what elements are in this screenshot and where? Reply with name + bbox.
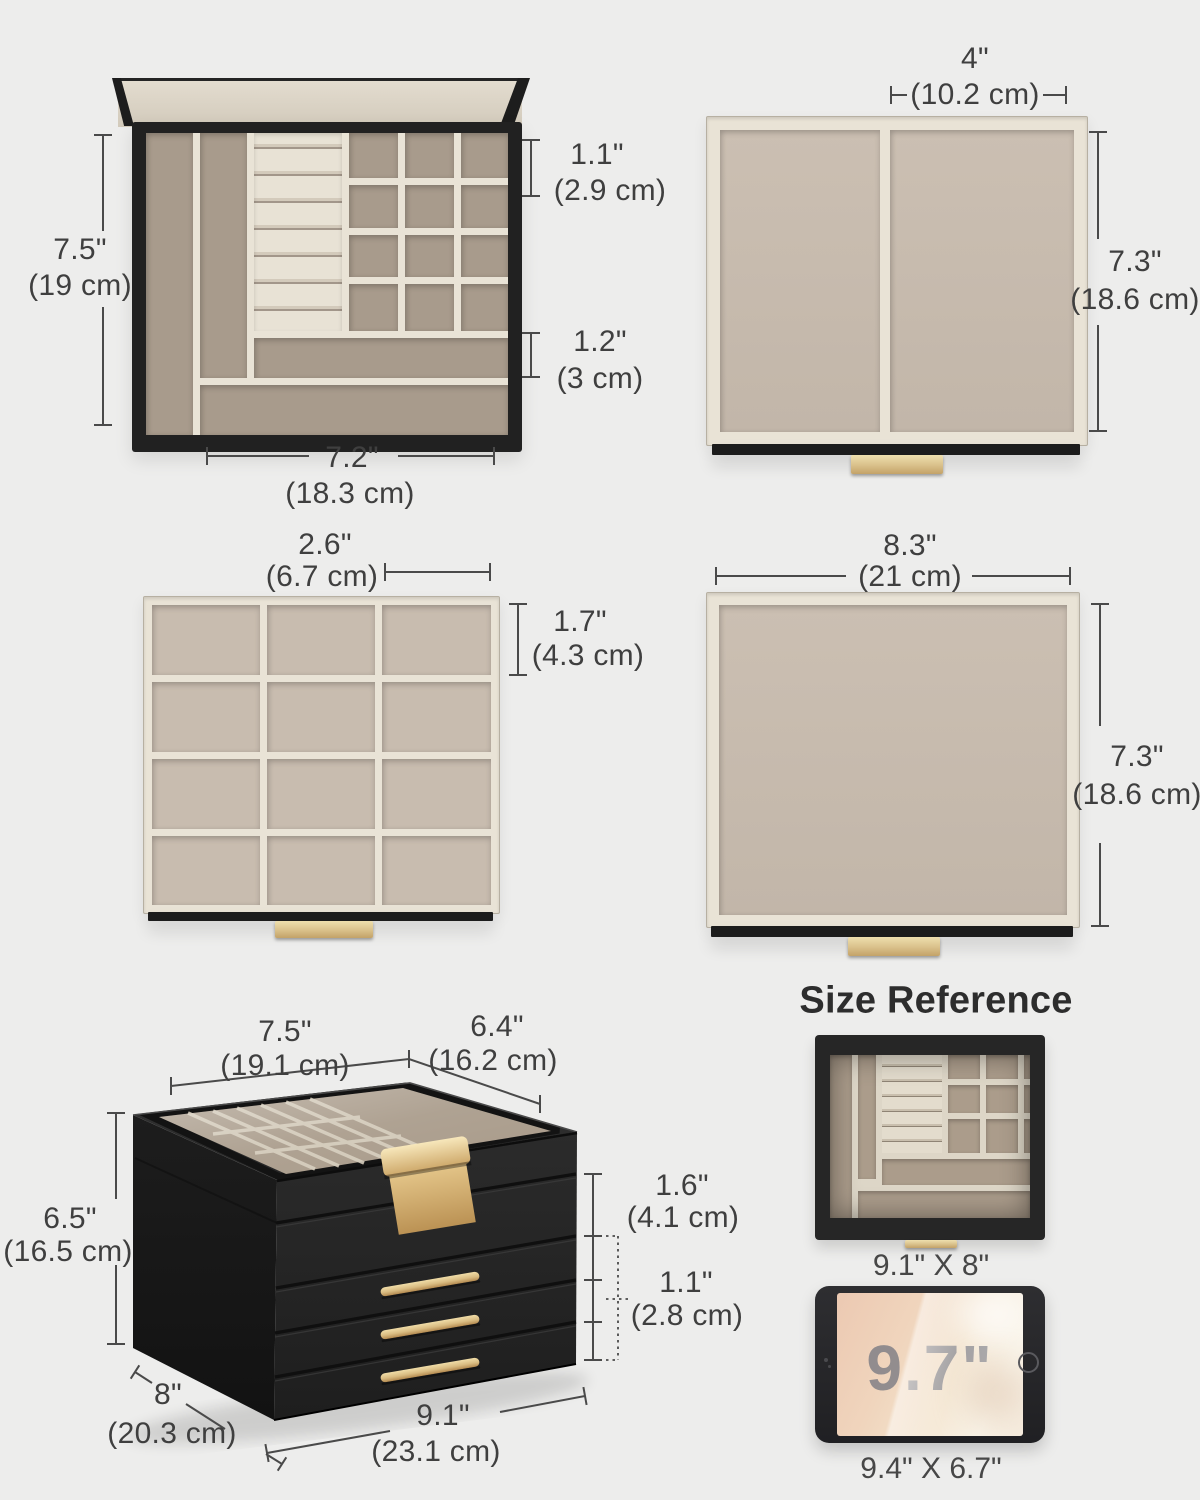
- dim-label: 7.5": [258, 1017, 312, 1047]
- dim-label: (18.6 cm): [1070, 285, 1199, 315]
- dim-label: (2.8 cm): [631, 1301, 743, 1331]
- dim-label: 8.3": [883, 531, 937, 561]
- dim-label: (2.9 cm): [554, 176, 666, 206]
- dim-label: (20.3 cm): [107, 1419, 236, 1449]
- dim-label: 6.4": [470, 1012, 524, 1042]
- dimension-labels: 7.5" (19 cm) 1.1" (2.9 cm) 1.2" (3 cm) 7…: [0, 0, 1200, 1500]
- dim-label: 7.5": [53, 235, 107, 265]
- dim-label: (21 cm): [858, 562, 962, 592]
- dim-label: 1.1": [659, 1268, 713, 1298]
- dim-label: 1.1": [570, 140, 624, 170]
- dim-label: (19 cm): [28, 271, 132, 301]
- dim-label: (23.1 cm): [371, 1437, 500, 1467]
- dim-label: (4.1 cm): [627, 1203, 739, 1233]
- dim-label: 2.6": [298, 530, 352, 560]
- dim-label: 1.7": [553, 607, 607, 637]
- dim-label: 7.3": [1108, 247, 1162, 277]
- dim-label: 1.6": [655, 1171, 709, 1201]
- dim-label: (10.2 cm): [910, 80, 1039, 110]
- dim-label: 7.3": [1110, 742, 1164, 772]
- dim-label: (16.2 cm): [428, 1046, 557, 1076]
- dim-label: (6.7 cm): [266, 562, 378, 592]
- dim-label: 1.2": [573, 327, 627, 357]
- organizer-footprint-label: 9.1" X 8": [873, 1249, 989, 1283]
- product-dimensions-infographic: 9.7": [0, 0, 1200, 1500]
- dim-label: (4.3 cm): [532, 641, 644, 671]
- dim-label: 7.2": [325, 443, 379, 473]
- dim-label: 6.5": [43, 1204, 97, 1234]
- dim-label: (19.1 cm): [220, 1051, 349, 1081]
- dim-label: (18.3 cm): [285, 479, 414, 509]
- dim-label: (3 cm): [557, 364, 644, 394]
- dim-label: (16.5 cm): [3, 1237, 132, 1267]
- size-reference-title: Size Reference: [799, 980, 1072, 1023]
- dim-label: 4": [961, 44, 989, 74]
- dim-label: 8": [154, 1380, 182, 1410]
- dim-label: 9.1": [416, 1401, 470, 1431]
- dim-label: (18.6 cm): [1072, 780, 1200, 810]
- tablet-footprint-label: 9.4" X 6.7": [860, 1452, 1001, 1486]
